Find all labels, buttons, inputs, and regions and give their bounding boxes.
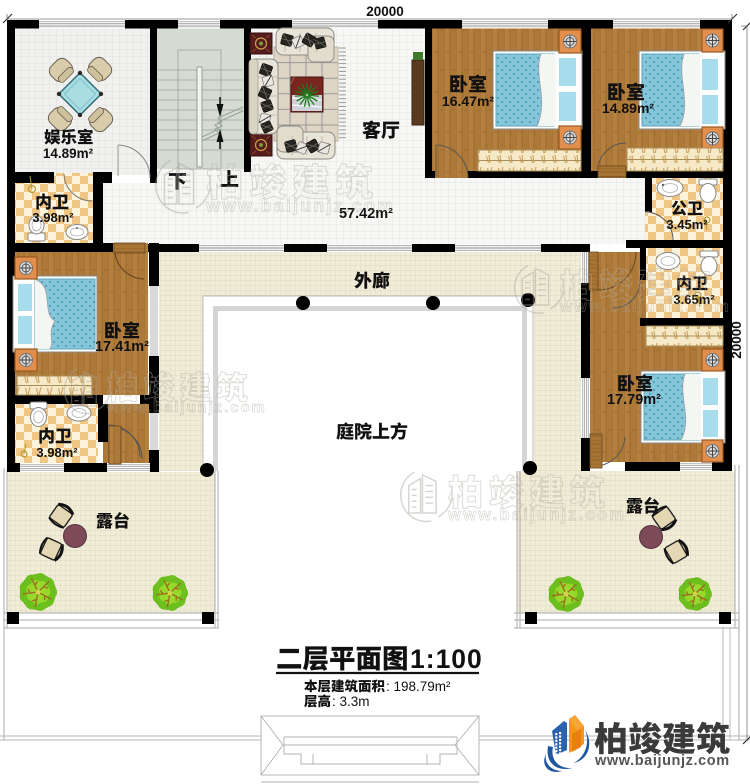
svg-text:14.89m²: 14.89m² [602,100,654,116]
svg-text:: 198.79m²: : 198.79m² [386,679,451,694]
svg-text:www.baijunjz.com: www.baijunjz.com [106,399,267,416]
svg-text:www.baijunjz.com: www.baijunjz.com [594,753,730,769]
svg-text:1:100: 1:100 [410,644,483,674]
svg-text:14.89m²: 14.89m² [43,146,94,161]
svg-text:20000: 20000 [366,4,404,19]
svg-text:17.79m²: 17.79m² [607,392,661,408]
svg-text:3.45m²: 3.45m² [666,217,708,232]
svg-text:www.baijunjz.com: www.baijunjz.com [205,195,395,215]
svg-text:www.baijunjz.com: www.baijunjz.com [447,505,626,524]
svg-text:16.47m²: 16.47m² [442,93,494,109]
svg-text:3.98m²: 3.98m² [32,210,74,225]
svg-text:17.41m²: 17.41m² [95,339,149,355]
svg-text:: 3.3m: : 3.3m [332,694,370,709]
svg-text:3.98m²: 3.98m² [36,445,78,460]
svg-text:www.baijunjz.com: www.baijunjz.com [559,299,731,316]
svg-text:20000: 20000 [729,321,744,359]
